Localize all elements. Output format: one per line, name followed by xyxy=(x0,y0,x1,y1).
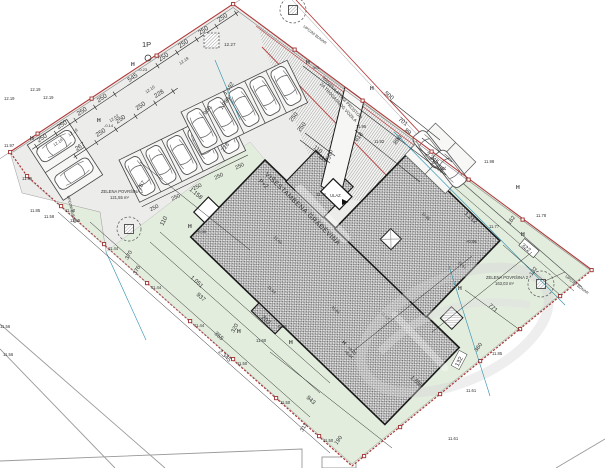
svg-text:+0.06: +0.06 xyxy=(466,239,477,244)
svg-text:501: 501 xyxy=(313,65,320,70)
svg-text:12.27: 12.27 xyxy=(224,42,236,47)
svg-text:H: H xyxy=(97,118,101,124)
svg-text:-0.14: -0.14 xyxy=(104,123,114,128)
svg-text:H: H xyxy=(131,62,135,68)
svg-text:-0.23: -0.23 xyxy=(138,67,148,72)
svg-text:H: H xyxy=(306,60,310,66)
svg-text:11.60: 11.60 xyxy=(256,338,267,343)
svg-text:11.56: 11.56 xyxy=(0,324,11,329)
svg-text:11.55: 11.55 xyxy=(70,218,81,223)
svg-text:11.92: 11.92 xyxy=(374,139,385,144)
svg-text:11.61: 11.61 xyxy=(466,388,477,393)
svg-text:H: H xyxy=(289,340,293,346)
svg-text:11.85: 11.85 xyxy=(492,351,503,356)
svg-text:11.58: 11.58 xyxy=(44,214,55,219)
svg-text:11.44: 11.44 xyxy=(194,323,205,328)
svg-text:11.95: 11.95 xyxy=(356,124,367,129)
svg-text:ZELENA POVRŠINA 2: ZELENA POVRŠINA 2 xyxy=(486,275,529,280)
svg-text:11.50: 11.50 xyxy=(237,361,248,366)
svg-text:11.77: 11.77 xyxy=(489,224,500,229)
svg-text:11.40: 11.40 xyxy=(65,208,76,213)
svg-text:11.50: 11.50 xyxy=(323,438,334,443)
svg-text:11.78: 11.78 xyxy=(536,213,547,218)
svg-text:11.44: 11.44 xyxy=(108,246,119,251)
svg-text:H: H xyxy=(516,185,520,191)
svg-text:121,55 m²: 121,55 m² xyxy=(110,195,129,200)
svg-text:11.44: 11.44 xyxy=(151,285,162,290)
svg-text:12.19: 12.19 xyxy=(4,96,15,101)
svg-text:11.50: 11.50 xyxy=(280,400,291,405)
svg-text:11.56: 11.56 xyxy=(3,352,14,357)
svg-text:+0.06: +0.06 xyxy=(196,229,207,234)
svg-text:1P: 1P xyxy=(142,40,151,49)
svg-text:H: H xyxy=(521,232,525,238)
svg-text:H: H xyxy=(188,224,192,230)
svg-text:12.19: 12.19 xyxy=(43,95,54,100)
svg-text:H: H xyxy=(237,329,241,335)
svg-text:15°: 15° xyxy=(440,166,447,171)
svg-text:H: H xyxy=(30,136,34,142)
svg-text:11.71: 11.71 xyxy=(316,192,327,197)
svg-text:11.95: 11.95 xyxy=(22,176,33,181)
svg-text:11.61: 11.61 xyxy=(448,436,459,441)
svg-text:11.97: 11.97 xyxy=(4,143,15,148)
svg-text:-0.06: -0.06 xyxy=(277,324,287,329)
svg-text:ULAZ: ULAZ xyxy=(330,193,341,198)
svg-text:H: H xyxy=(458,286,462,292)
svg-text:H: H xyxy=(370,86,374,92)
svg-text:11.98: 11.98 xyxy=(484,159,495,164)
svg-text:12.19: 12.19 xyxy=(30,87,41,92)
svg-text:163,03 m²: 163,03 m² xyxy=(495,281,514,286)
svg-text:ZELENA POVRŠINA 1: ZELENA POVRŠINA 1 xyxy=(101,189,144,194)
svg-text:11.85: 11.85 xyxy=(30,208,41,213)
